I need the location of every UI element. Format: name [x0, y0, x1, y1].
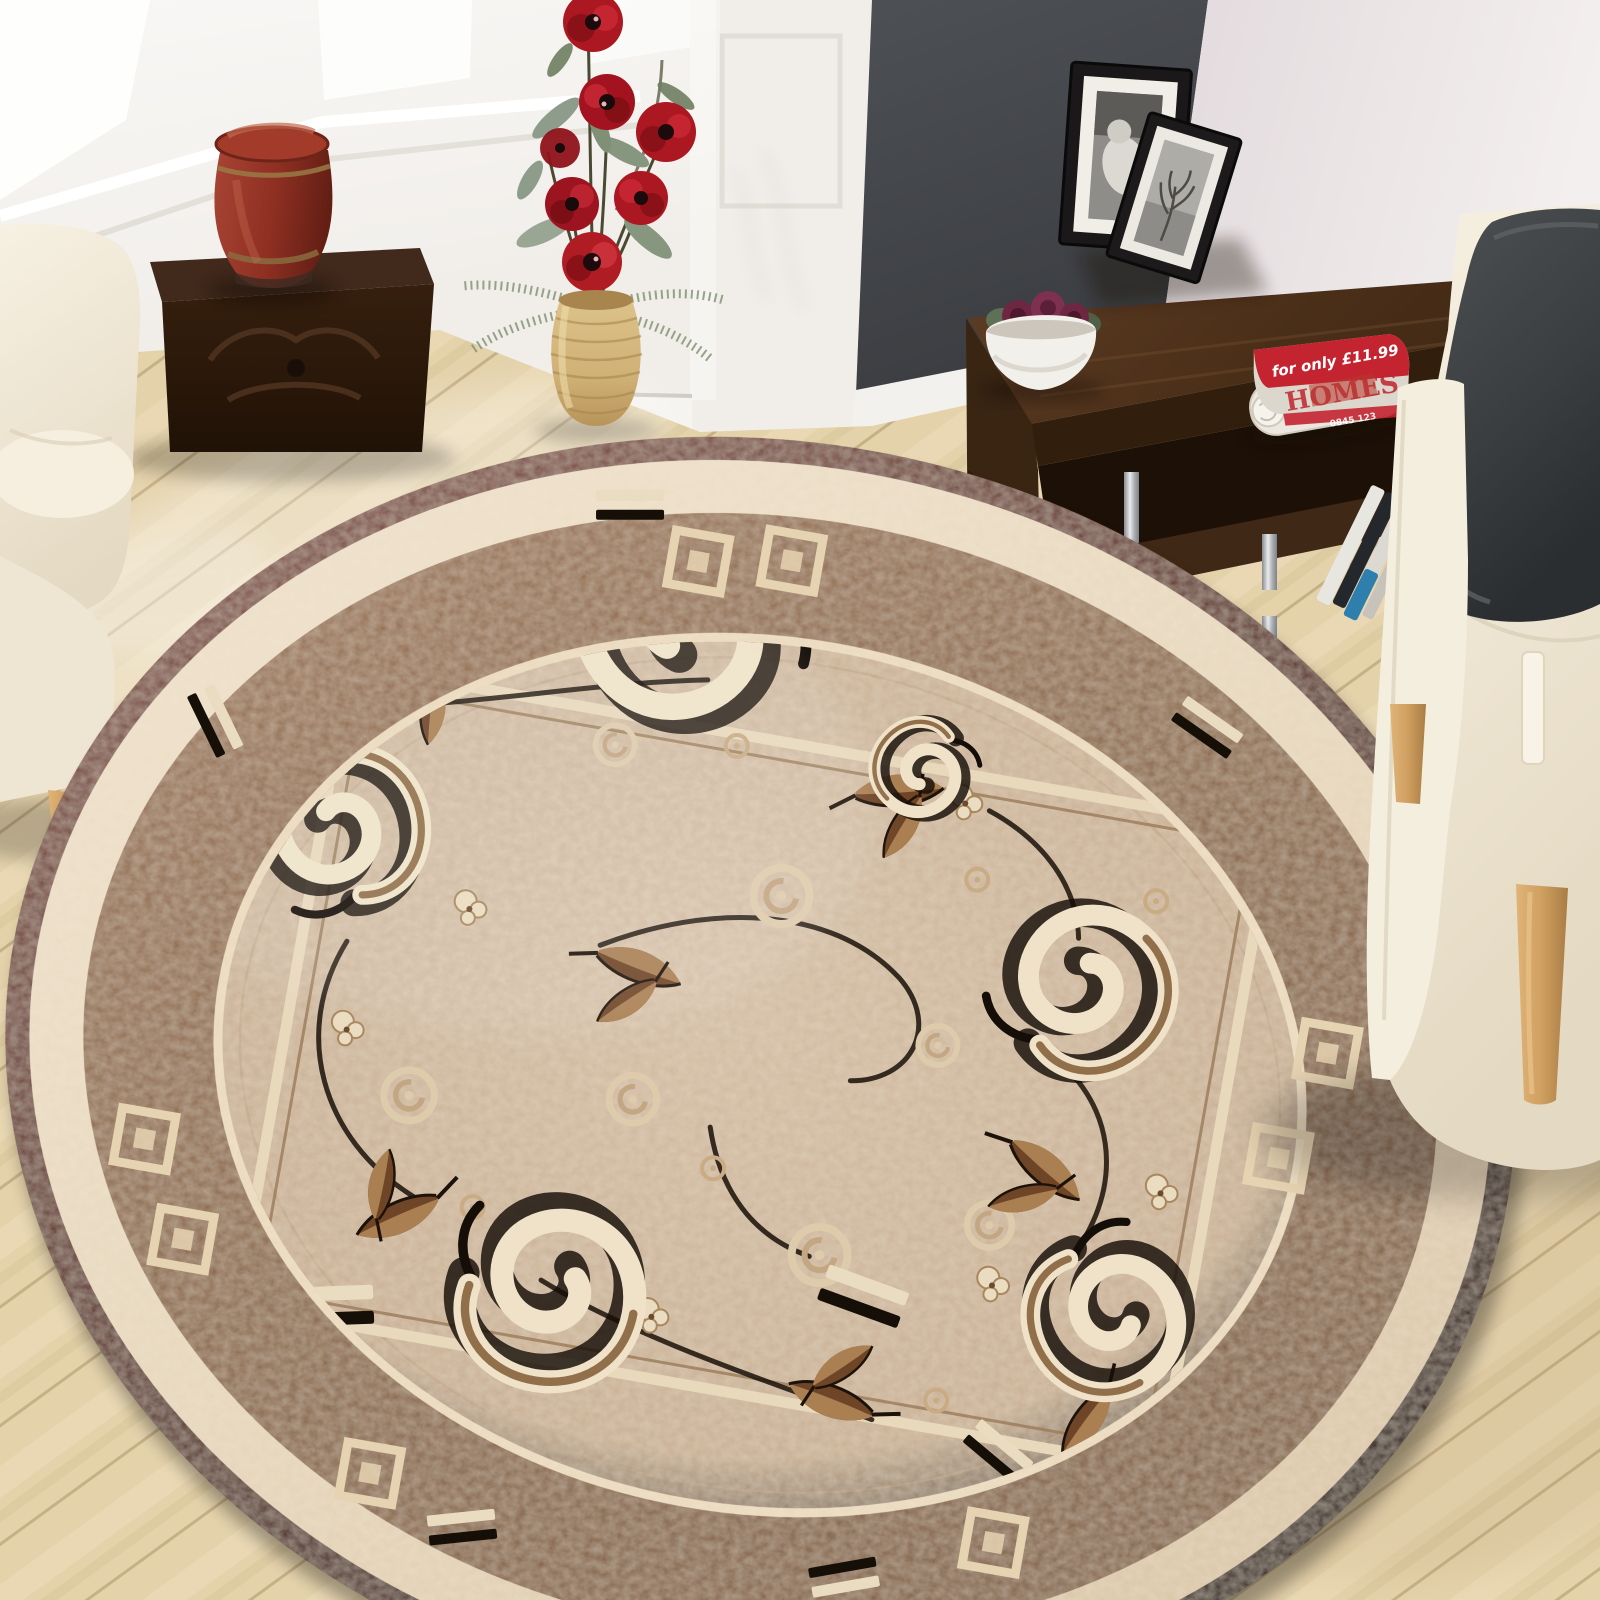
right-chair-seam-flap	[1522, 652, 1544, 764]
chrome-support-2	[1262, 534, 1277, 590]
vase-mouth	[559, 290, 633, 310]
chest-keyhole	[287, 359, 305, 377]
left-chair-back	[0, 224, 140, 623]
living-room-photo: for only £11.99 HOMES 0845 123	[0, 0, 1600, 1600]
right-chair-leg-back	[1390, 704, 1426, 804]
